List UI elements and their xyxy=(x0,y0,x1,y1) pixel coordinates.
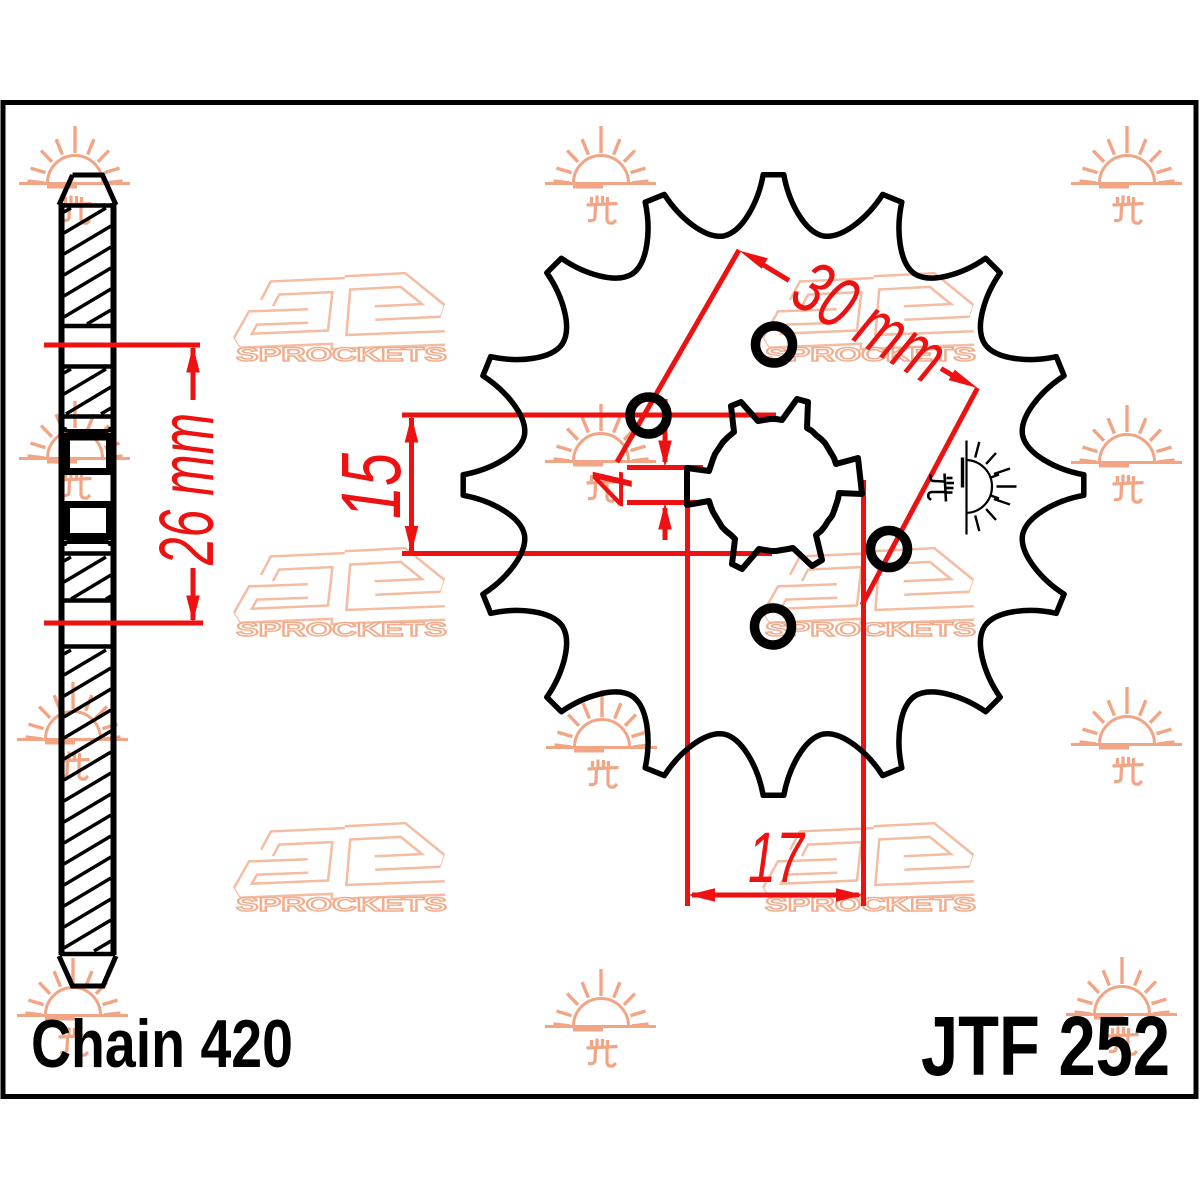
svg-text:15: 15 xyxy=(324,453,418,519)
svg-text:17: 17 xyxy=(748,819,806,898)
svg-text:26 mm: 26 mm xyxy=(144,413,230,566)
svg-text:Chain 420: Chain 420 xyxy=(31,1006,293,1082)
svg-text:4: 4 xyxy=(581,469,645,507)
svg-text:JTF 252: JTF 252 xyxy=(921,999,1170,1093)
